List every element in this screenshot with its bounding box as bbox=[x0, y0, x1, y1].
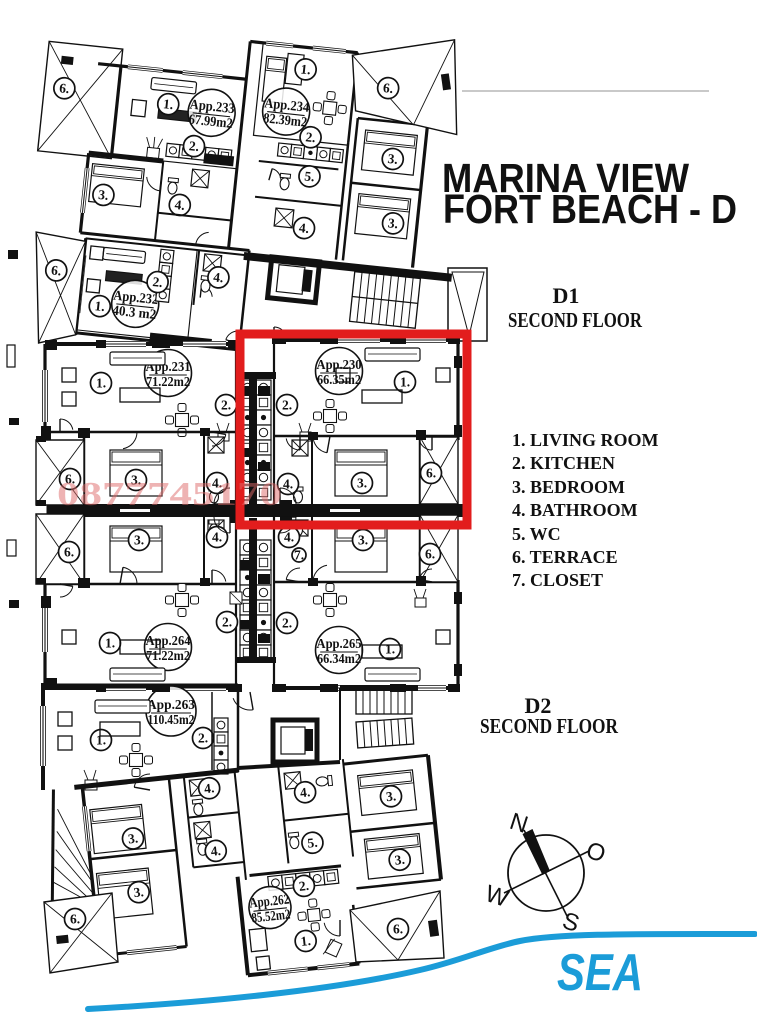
svg-text:4.: 4. bbox=[203, 780, 215, 796]
svg-text:SECOND FLOOR: SECOND FLOOR bbox=[480, 714, 619, 738]
svg-text:110.45m2: 110.45m2 bbox=[148, 713, 195, 728]
svg-text:6.: 6. bbox=[393, 922, 403, 937]
svg-text:4. BATHROOM: 4. BATHROOM bbox=[512, 500, 638, 520]
svg-text:3. BEDROOM: 3. BEDROOM bbox=[512, 477, 625, 497]
svg-text:App.263: App.263 bbox=[147, 698, 195, 713]
svg-text:6. TERRACE: 6. TERRACE bbox=[512, 547, 618, 567]
svg-text:3.: 3. bbox=[358, 533, 368, 548]
svg-text:4.: 4. bbox=[298, 220, 310, 236]
svg-text:1. LIVING ROOM: 1. LIVING ROOM bbox=[512, 430, 659, 450]
svg-text:2.: 2. bbox=[282, 616, 292, 631]
svg-text:3.: 3. bbox=[98, 187, 110, 203]
svg-text:5.: 5. bbox=[307, 835, 319, 851]
svg-text:2.: 2. bbox=[298, 878, 310, 894]
svg-text:1.: 1. bbox=[105, 636, 115, 651]
svg-text:4.: 4. bbox=[212, 530, 222, 545]
svg-text:3.: 3. bbox=[357, 476, 367, 491]
svg-text:0877745170: 0877745170 bbox=[57, 476, 282, 513]
svg-text:FORT BEACH - D: FORT BEACH - D bbox=[443, 186, 737, 232]
svg-text:D1: D1 bbox=[553, 283, 580, 308]
svg-text:3.: 3. bbox=[133, 884, 145, 900]
svg-text:1.: 1. bbox=[94, 298, 106, 314]
svg-text:6.: 6. bbox=[64, 545, 74, 560]
svg-text:6.: 6. bbox=[50, 262, 62, 278]
svg-text:4.: 4. bbox=[210, 843, 222, 859]
svg-text:66.34m2: 66.34m2 bbox=[317, 652, 361, 667]
svg-text:1.: 1. bbox=[96, 733, 106, 748]
svg-text:4.: 4. bbox=[213, 269, 225, 285]
svg-text:3.: 3. bbox=[385, 788, 397, 804]
svg-text:6.: 6. bbox=[425, 547, 435, 562]
svg-text:2.: 2. bbox=[221, 398, 231, 413]
svg-text:66.35m2: 66.35m2 bbox=[317, 373, 361, 388]
svg-text:3.: 3. bbox=[394, 852, 406, 868]
svg-text:App.265: App.265 bbox=[317, 637, 362, 652]
svg-text:3.: 3. bbox=[387, 215, 399, 231]
svg-text:2.: 2. bbox=[282, 398, 292, 413]
svg-text:2.: 2. bbox=[152, 274, 164, 290]
svg-text:3.: 3. bbox=[387, 151, 399, 167]
svg-text:1.: 1. bbox=[300, 933, 312, 949]
svg-text:4.: 4. bbox=[174, 197, 186, 213]
svg-text:App.230: App.230 bbox=[317, 358, 362, 373]
svg-text:4.: 4. bbox=[299, 784, 311, 800]
svg-text:4.: 4. bbox=[283, 477, 293, 492]
svg-text:2.: 2. bbox=[188, 138, 200, 154]
svg-text:1.: 1. bbox=[162, 96, 174, 112]
svg-text:2.: 2. bbox=[198, 731, 208, 746]
svg-text:6.: 6. bbox=[382, 80, 394, 96]
svg-text:7.: 7. bbox=[294, 548, 304, 563]
svg-text:3.: 3. bbox=[134, 533, 144, 548]
svg-text:2.: 2. bbox=[222, 615, 232, 630]
svg-text:3.: 3. bbox=[127, 830, 139, 846]
svg-text:6.: 6. bbox=[59, 80, 71, 96]
svg-text:App.264: App.264 bbox=[146, 634, 191, 649]
svg-text:1.: 1. bbox=[300, 61, 312, 77]
svg-text:2. KITCHEN: 2. KITCHEN bbox=[512, 453, 615, 473]
svg-text:6.: 6. bbox=[426, 466, 436, 481]
svg-text:1.: 1. bbox=[96, 376, 106, 391]
svg-text:71.22m2: 71.22m2 bbox=[146, 649, 190, 664]
svg-text:5.: 5. bbox=[304, 168, 316, 184]
svg-text:2.: 2. bbox=[305, 129, 317, 145]
svg-text:1.: 1. bbox=[400, 375, 410, 390]
svg-text:SECOND FLOOR: SECOND FLOOR bbox=[508, 308, 643, 332]
svg-text:5. WC: 5. WC bbox=[512, 524, 561, 544]
svg-text:6.: 6. bbox=[70, 912, 80, 927]
svg-text:1.: 1. bbox=[385, 642, 395, 657]
svg-text:SEA: SEA bbox=[557, 944, 643, 1002]
svg-text:7. CLOSET: 7. CLOSET bbox=[512, 570, 603, 590]
